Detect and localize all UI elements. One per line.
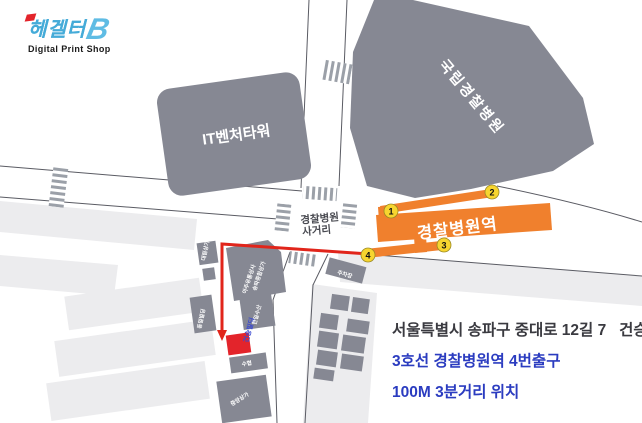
distance-info: 100M 3분거리 위치: [392, 380, 638, 402]
logo-korean-text: 헤겔터: [28, 13, 86, 42]
route-arrowhead-icon: [217, 330, 227, 341]
address-line: 서울특별시 송파구 중대로 12길 7 건승빌딩: [392, 318, 638, 340]
mini-building: [316, 350, 338, 368]
directions-info: 서울특별시 송파구 중대로 12길 7 건승빌딩 3호선 경찰병원역 4번출구 …: [392, 318, 638, 402]
mini-building: [341, 335, 366, 354]
exit-badge-4: 4: [361, 248, 375, 262]
crosswalk-intersection-west: [275, 203, 292, 231]
crosswalk-intersection-north: [303, 186, 338, 201]
exit-3-number: 3: [441, 240, 446, 250]
mini-building: [317, 331, 339, 350]
crosswalk-north-road: [321, 60, 352, 85]
logo-b-swoosh-icon: B: [85, 18, 112, 42]
logo-wordmark: 헤겔터 B: [28, 14, 148, 42]
exit-badge-2: 2: [485, 185, 499, 199]
mini-building: [319, 313, 339, 330]
mini-building: [351, 297, 370, 314]
exit-badge-1: 1: [384, 204, 398, 218]
mini-building: [330, 294, 350, 311]
exit-1-number: 1: [388, 206, 393, 216]
intersection-label-line2: 사거리: [302, 223, 332, 238]
shop-logo: 헤겔터 B Digital Print Shop: [28, 14, 148, 54]
city-block-west: [0, 201, 197, 250]
station-lower-arm: [365, 241, 442, 258]
subway-line-info: 3호선 경찰병원역 4번출구: [392, 349, 638, 371]
exit-2-number: 2: [489, 187, 494, 197]
crosswalk-intersection-east: [341, 202, 358, 228]
print-shop-location-map: 국립경찰병원 IT벤처타워 경찰병원역 경찰병원 사거리 건승빌딩 대림상가 동…: [0, 0, 642, 423]
city-block-west-lower: [0, 255, 118, 296]
exit-4-number: 4: [365, 250, 370, 260]
road-edge-north-right: [339, 0, 347, 186]
crosswalk-intersection-south: [288, 251, 317, 267]
city-block-east-band: [338, 252, 642, 306]
small-building-b: [202, 267, 216, 281]
mini-building: [340, 354, 364, 372]
crosswalk-far-west: [49, 166, 69, 208]
exit-badge-3: 3: [437, 238, 451, 252]
